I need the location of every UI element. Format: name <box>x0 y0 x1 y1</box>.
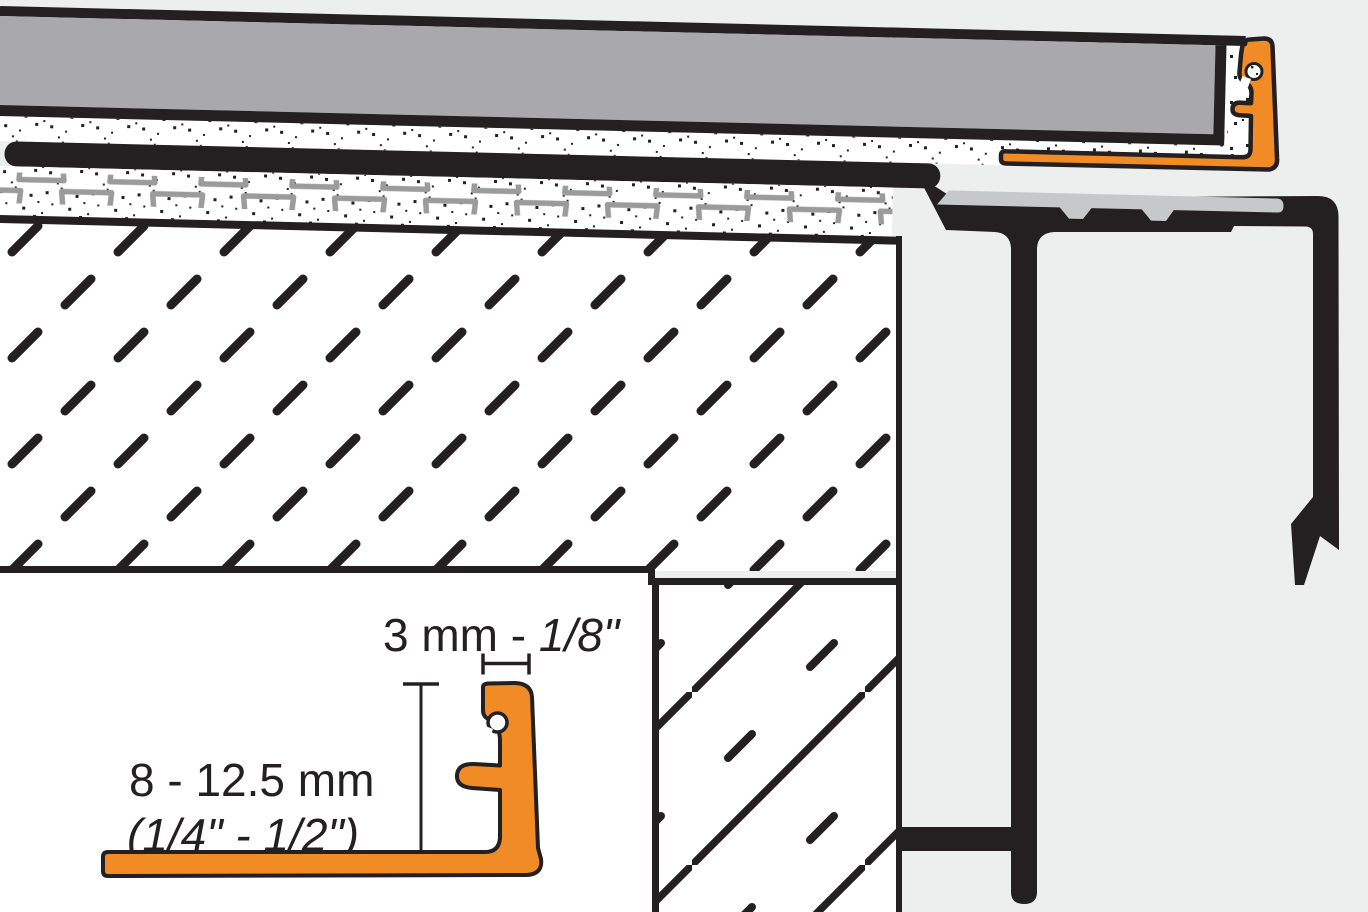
width-dimension-value: 1/8" <box>539 609 622 661</box>
concrete-wall <box>655 578 900 912</box>
width-dimension-prefix: 3 mm - <box>383 609 539 661</box>
wall-hatch <box>655 578 900 912</box>
tile-edge-profile-diagram: 3 mm - 1/8" 8 - 12.5 mm (1/4" - 1/2") <box>0 0 1368 912</box>
width-dimension-label: 3 mm - 1/8" <box>383 609 622 661</box>
wall-top-border <box>652 578 900 585</box>
wall-right-border <box>896 236 902 912</box>
inset-top-border <box>0 566 652 573</box>
substrate-hatch <box>0 219 897 571</box>
height-dimension-label-metric: 8 - 12.5 mm <box>129 754 374 806</box>
substrate-screed <box>0 219 897 571</box>
notch-mortar-dot-1 <box>1251 66 1253 68</box>
installation-cross-section-svg: 3 mm - 1/8" 8 - 12.5 mm (1/4" - 1/2") <box>0 0 1368 912</box>
wall-left-border <box>652 578 659 912</box>
tile-right-outline <box>1213 45 1226 140</box>
edge-profile-main-hook-notch <box>1246 64 1262 80</box>
notch-mortar-dot-2 <box>1256 73 1258 75</box>
